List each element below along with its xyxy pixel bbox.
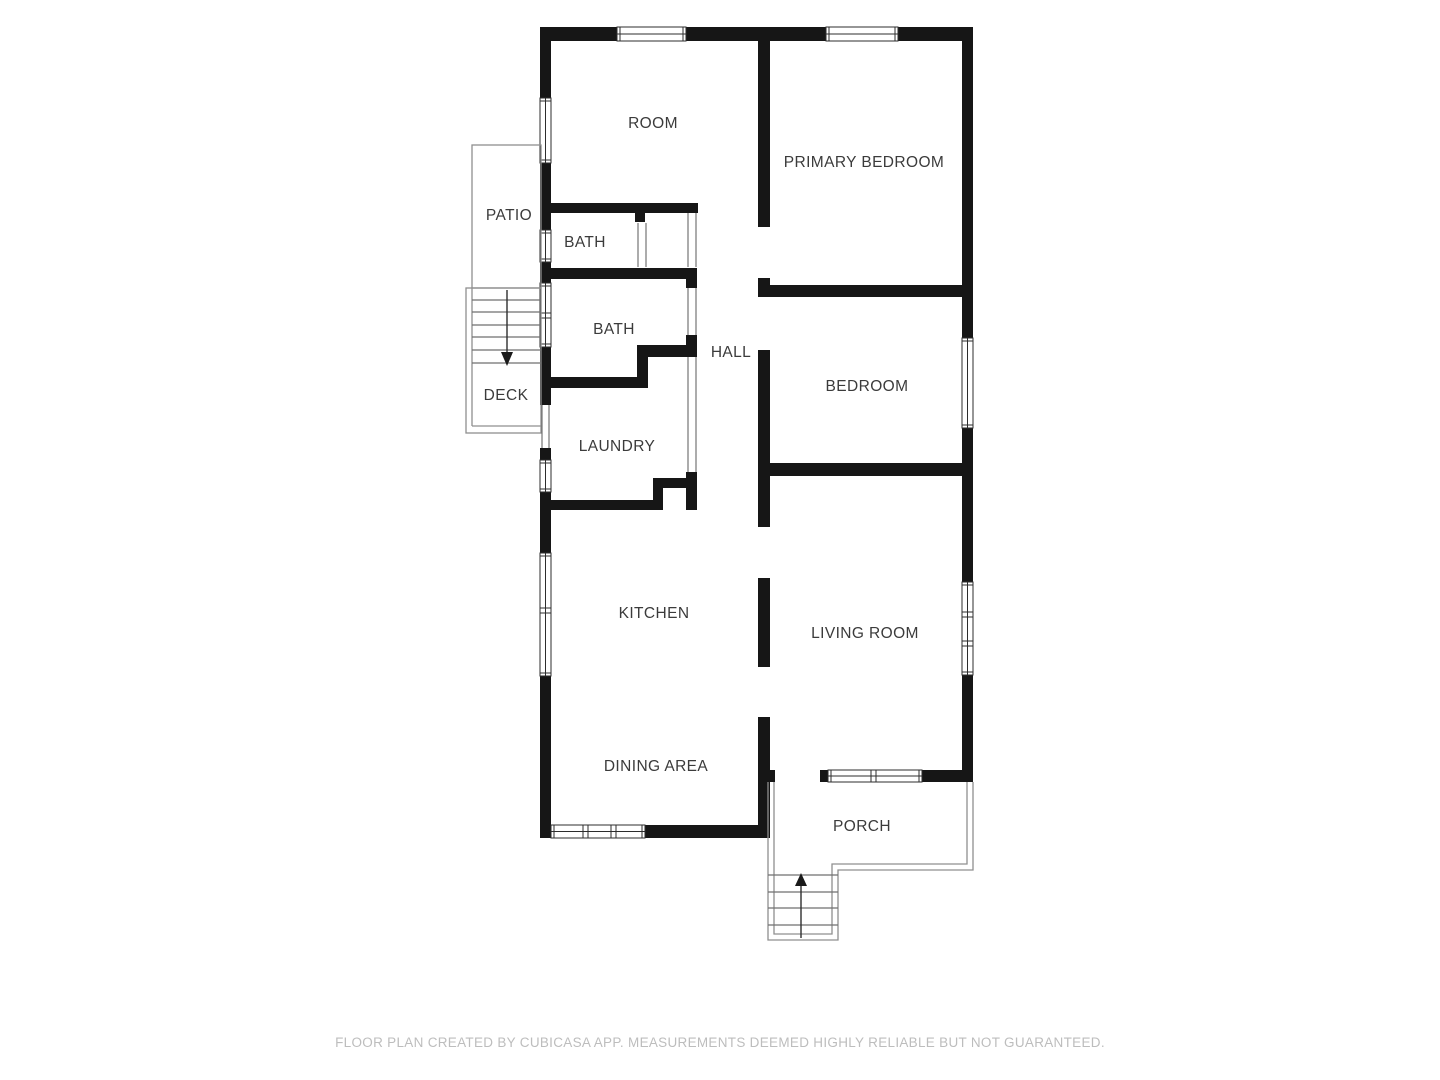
window-icon (540, 283, 551, 347)
room-label-bedroom: BEDROOM (826, 378, 909, 396)
window-icon (962, 582, 973, 675)
window-icon (617, 27, 686, 41)
room-label-dining-area: DINING AREA (604, 758, 708, 776)
porch-outline (768, 782, 973, 940)
window-icon (828, 770, 922, 782)
window-icon (540, 98, 551, 163)
window-icon (540, 460, 551, 492)
room-label-kitchen: KITCHEN (619, 605, 690, 623)
footer-disclaimer: FLOOR PLAN CREATED BY CUBICASA APP. MEAS… (0, 1035, 1440, 1050)
porch-stairs (768, 873, 838, 938)
window-icon (540, 553, 551, 676)
room-label-patio: PATIO (486, 207, 532, 225)
window-icon (551, 825, 645, 838)
floor-plan-drawing (0, 0, 1440, 1080)
deck-outline (466, 288, 541, 433)
room-label-living-room: LIVING ROOM (811, 625, 919, 643)
room-label-laundry: LAUNDRY (579, 438, 656, 456)
room-label-room: ROOM (628, 115, 678, 133)
room-label-porch: PORCH (833, 818, 891, 836)
room-label-hall: HALL (711, 344, 751, 362)
exterior-walls (540, 27, 973, 838)
room-label-deck: DECK (484, 387, 529, 405)
room-label-primary-bedroom: PRIMARY BEDROOM (784, 154, 944, 172)
interior-walls (540, 27, 962, 838)
windows (540, 27, 973, 838)
room-label-bath-upper: BATH (564, 234, 606, 252)
window-icon (826, 27, 898, 41)
window-icon (540, 230, 551, 262)
room-label-bath-lower: BATH (593, 321, 635, 339)
stairs-down-arrow-icon (501, 352, 513, 366)
deck-stairs (472, 290, 541, 366)
floor-plan-page: ROOM PRIMARY BEDROOM PATIO BATH BATH HAL… (0, 0, 1440, 1080)
window-icon (962, 338, 973, 428)
